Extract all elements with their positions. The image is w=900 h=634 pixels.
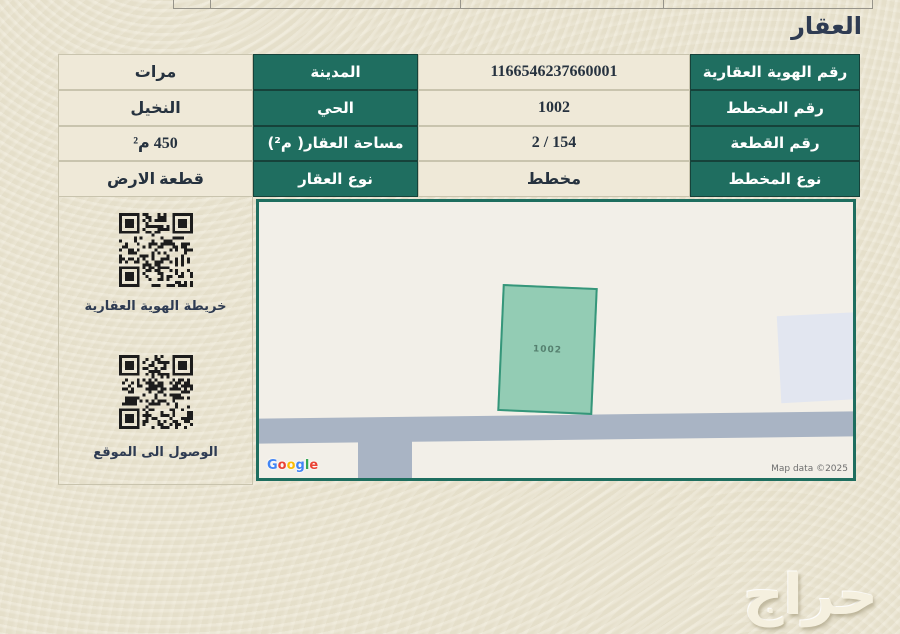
label-city: المدينة xyxy=(253,54,418,90)
cutoff-table-edge xyxy=(173,0,873,9)
value-property-id: 1166546237660001 xyxy=(418,54,690,90)
value-plan-number: 1002 xyxy=(418,90,690,126)
google-logo-letter: o xyxy=(278,458,287,473)
label-plan-type: نوع المخطط xyxy=(690,161,860,197)
page-background: العقار رقم الهوية العقارية 1166546237660… xyxy=(0,0,900,634)
google-logo-letter: e xyxy=(309,458,318,473)
qr-location-label: الوصول الى الموقع xyxy=(59,445,252,460)
map-attribution: Map data ©2025 xyxy=(771,464,848,474)
label-plan-number: رقم المخطط xyxy=(690,90,860,126)
value-plan-type: مخطط xyxy=(418,161,690,197)
qr-panel: خريطة الهوية العقارية الوصول الى الموقع xyxy=(58,197,253,485)
map-canvas[interactable]: 1002 Google Map data ©2025 xyxy=(259,202,853,478)
qr-code-icon xyxy=(119,355,193,429)
map-frame: 1002 Google Map data ©2025 xyxy=(256,199,856,481)
google-logo-letter: o xyxy=(287,458,296,473)
value-parcel-number: 2 / 154 xyxy=(418,126,690,162)
qr-map-label: خريطة الهوية العقارية xyxy=(59,299,252,314)
value-city: مرات xyxy=(58,54,253,90)
label-property-type: نوع العقار xyxy=(253,161,418,197)
google-logo-letter: G xyxy=(267,458,278,473)
label-district: الحي xyxy=(253,90,418,126)
value-property-type: قطعة الارض xyxy=(58,161,253,197)
haraj-watermark: حراج xyxy=(743,563,878,628)
property-table: رقم الهوية العقارية 1166546237660001 الم… xyxy=(58,54,860,197)
qr-code-icon xyxy=(119,213,193,287)
label-parcel-number: رقم القطعة xyxy=(690,126,860,162)
value-district: النخيل xyxy=(58,90,253,126)
cutoff-table-divider xyxy=(173,0,174,8)
cutoff-table-divider xyxy=(663,0,664,8)
page-title: العقار xyxy=(791,12,862,40)
value-area: 450 م² xyxy=(58,126,253,162)
cutoff-table-divider xyxy=(460,0,461,8)
google-logo[interactable]: Google xyxy=(267,458,318,473)
label-area: مساحة العقار( م²) xyxy=(253,126,418,162)
cutoff-table-divider xyxy=(210,0,211,8)
google-logo-letter: g xyxy=(296,458,305,473)
map-parcel[interactable]: 1002 xyxy=(497,284,597,415)
label-property-id: رقم الهوية العقارية xyxy=(690,54,860,90)
map-road-horizontal xyxy=(256,411,856,443)
map-parcel-label: 1002 xyxy=(533,344,562,355)
map-neighbor-parcel xyxy=(777,312,856,403)
cutoff-table-divider xyxy=(872,0,873,8)
